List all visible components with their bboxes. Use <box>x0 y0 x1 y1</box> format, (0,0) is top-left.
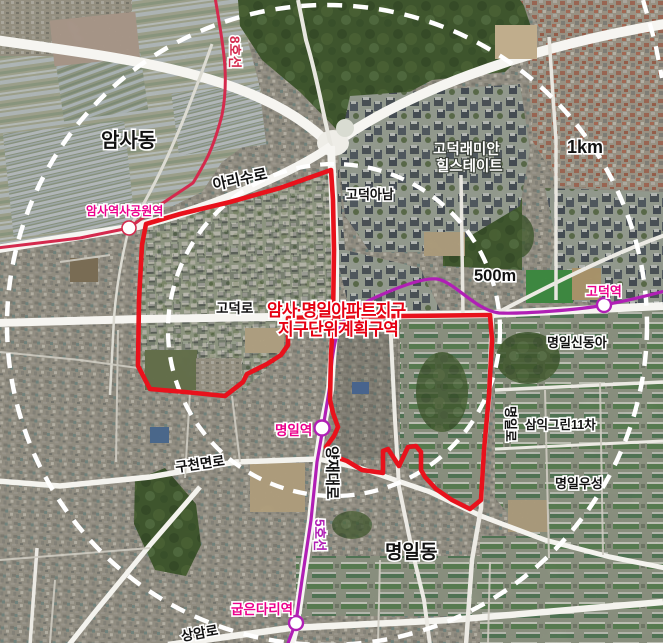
svg-text:명일로: 명일로 <box>503 406 518 442</box>
svg-text:굽은다리역: 굽은다리역 <box>231 601 293 617</box>
svg-text:암사동: 암사동 <box>101 129 156 152</box>
svg-text:8호선: 8호선 <box>227 36 242 68</box>
svg-text:고덕역: 고덕역 <box>586 284 622 299</box>
svg-text:고덕아남: 고덕아남 <box>346 187 394 202</box>
svg-text:고덕래미안: 고덕래미안 <box>433 140 500 158</box>
svg-text:삼익그린11차: 삼익그린11차 <box>525 417 596 432</box>
svg-text:500m: 500m <box>474 267 516 285</box>
svg-text:명일동: 명일동 <box>385 541 437 563</box>
svg-text:명일신동아: 명일신동아 <box>547 335 607 350</box>
svg-text:명일역: 명일역 <box>275 422 312 438</box>
svg-text:고덕로: 고덕로 <box>216 300 254 316</box>
svg-text:5호선: 5호선 <box>312 519 327 551</box>
svg-text:1km: 1km <box>567 137 603 157</box>
svg-text:명일우성: 명일우성 <box>555 476 603 491</box>
svg-text:힐스테이트: 힐스테이트 <box>436 158 503 175</box>
svg-text:암사역사공원역: 암사역사공원역 <box>86 203 163 218</box>
svg-text:양재대로: 양재대로 <box>323 446 340 499</box>
svg-text:암사·명일아파트지구: 암사·명일아파트지구 <box>267 301 407 320</box>
svg-text:지구단위계획구역: 지구단위계획구역 <box>278 320 398 339</box>
